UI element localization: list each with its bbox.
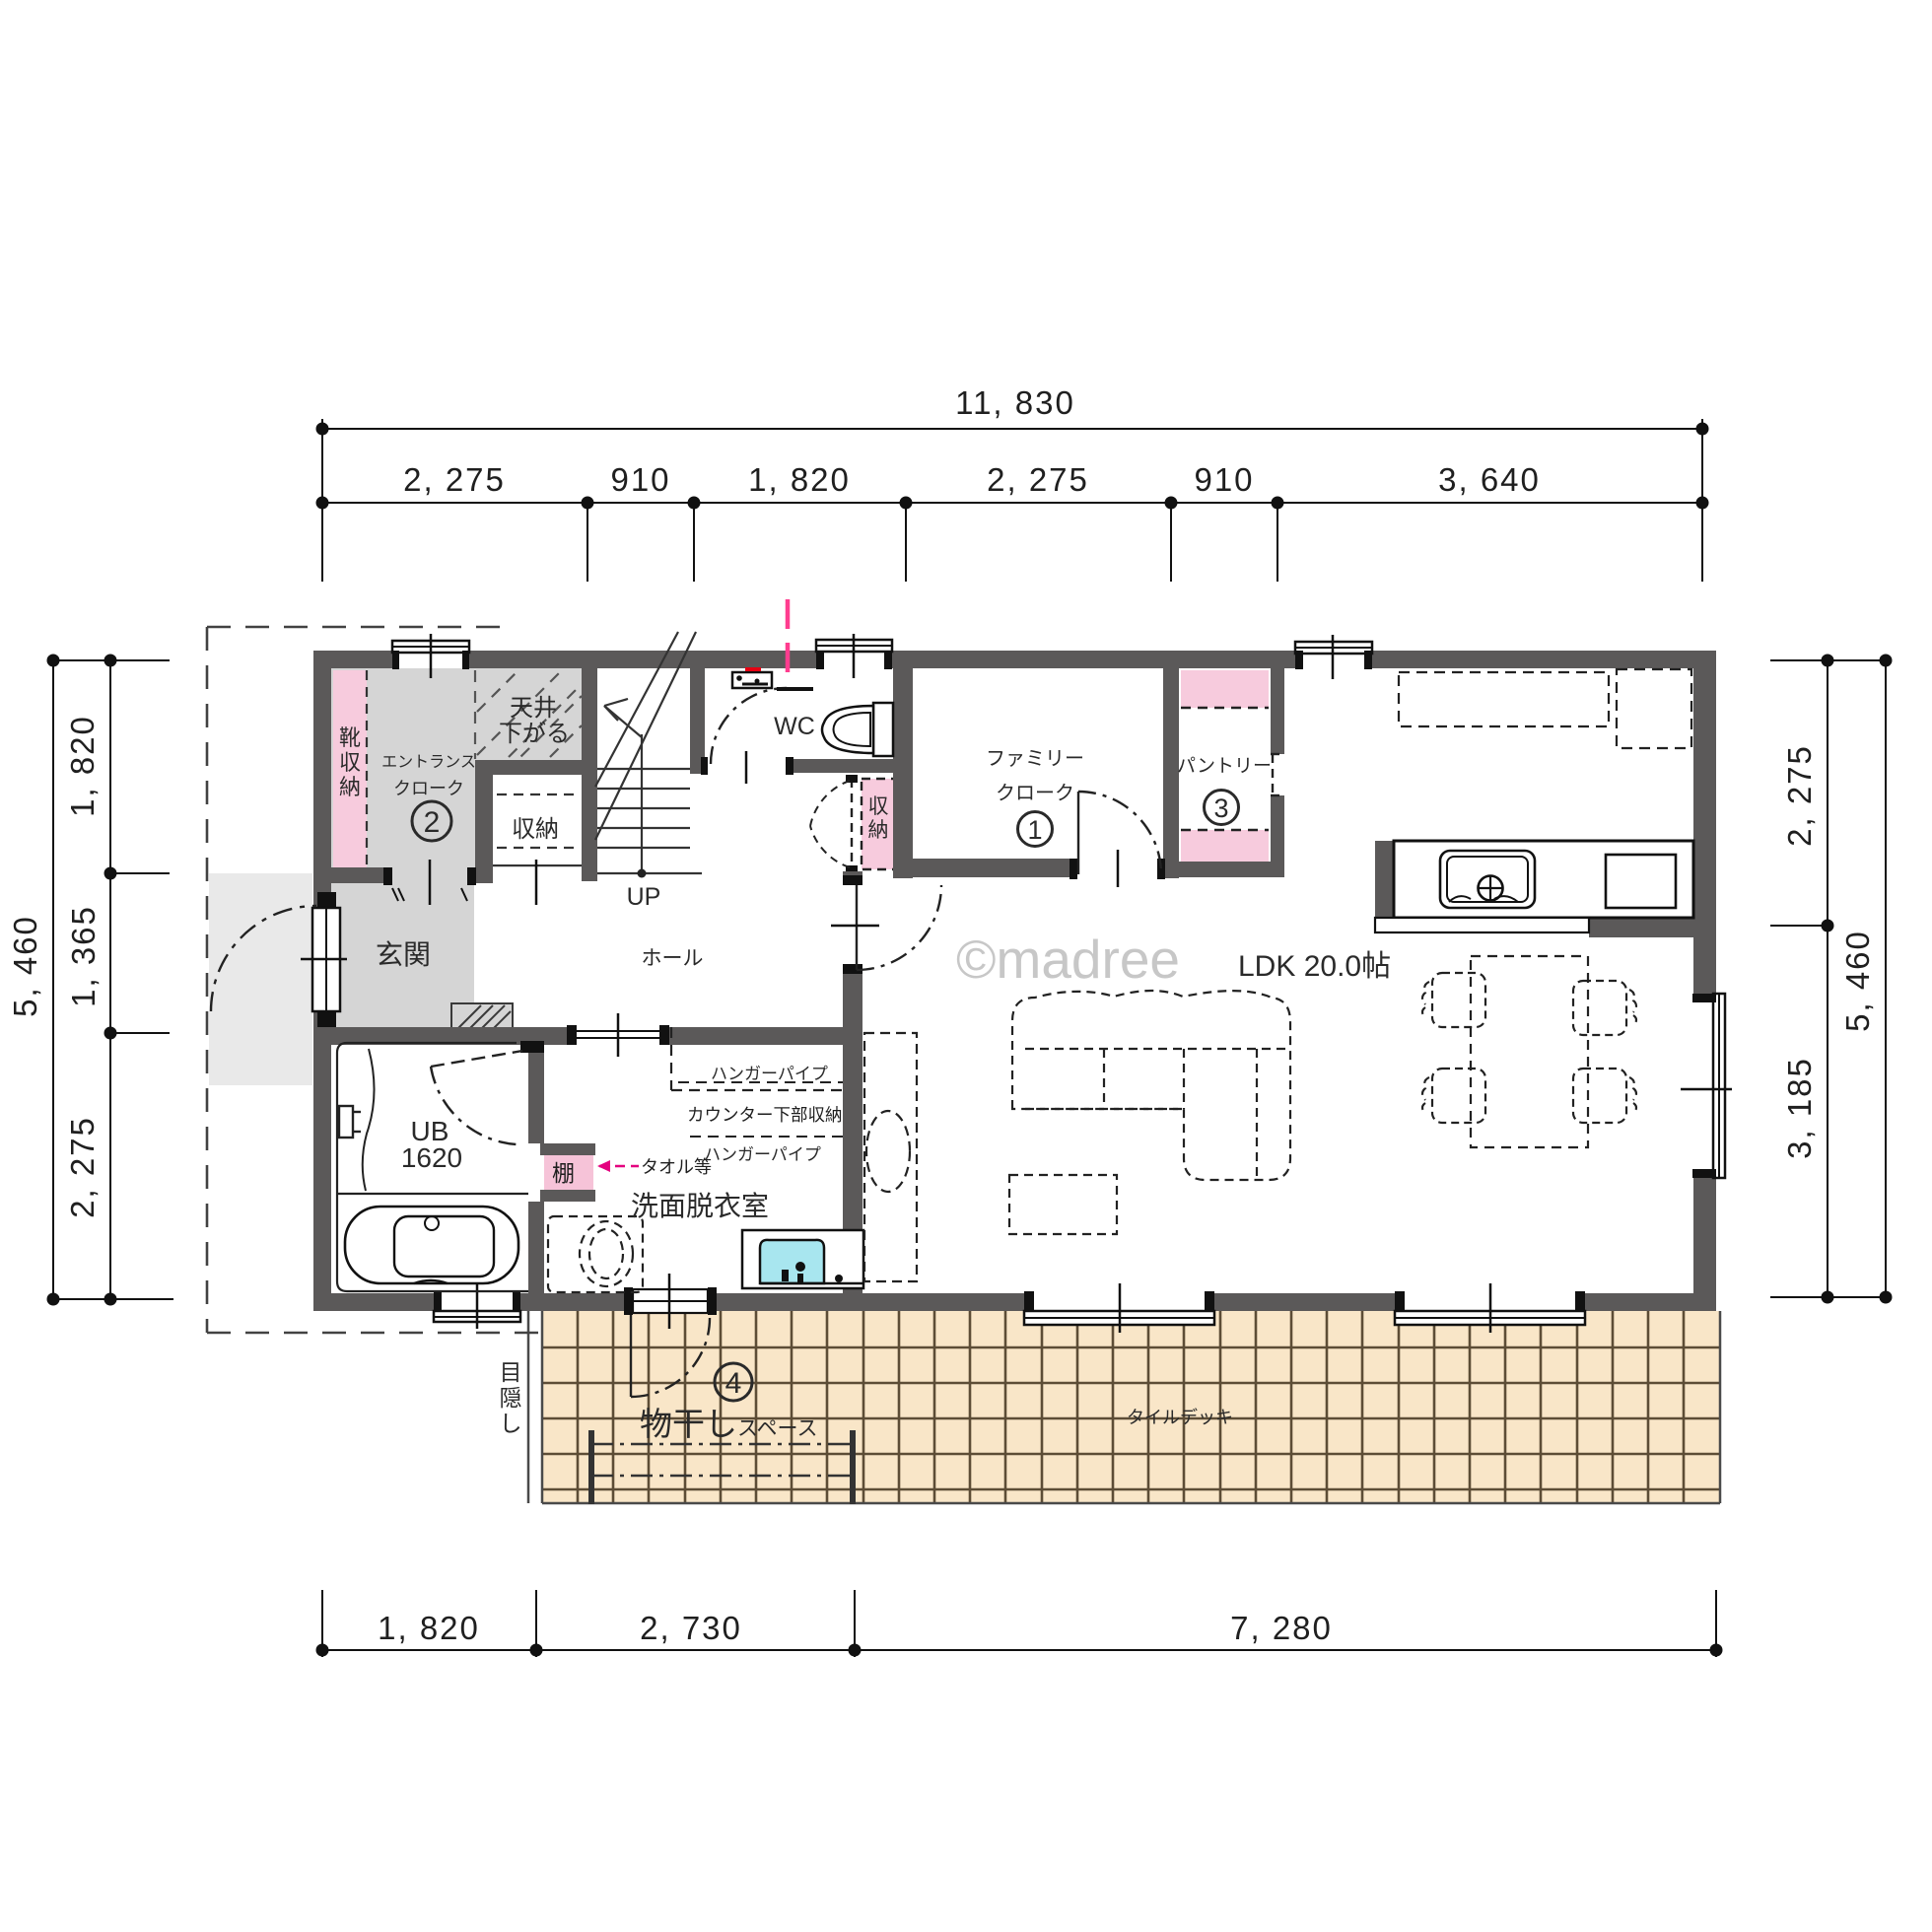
svg-text:納: 納	[339, 775, 361, 799]
svg-text:2, 275: 2, 275	[403, 461, 506, 498]
svg-text:カウンター下部収納: カウンター下部収納	[687, 1105, 843, 1125]
svg-text:2, 275: 2, 275	[1781, 744, 1818, 847]
svg-text:パントリー: パントリー	[1177, 756, 1272, 777]
svg-text:天井: 天井	[510, 695, 557, 722]
svg-text:2, 730: 2, 730	[640, 1610, 742, 1646]
svg-text:目: 目	[500, 1359, 522, 1385]
svg-text:ハンガーパイプ: ハンガーパイプ	[704, 1145, 821, 1164]
svg-text:1, 820: 1, 820	[748, 461, 851, 498]
svg-text:し: し	[500, 1411, 522, 1436]
svg-text:3, 185: 3, 185	[1781, 1057, 1818, 1159]
svg-text:クローク: クローク	[996, 782, 1074, 804]
svg-text:1, 820: 1, 820	[378, 1610, 480, 1646]
svg-text:エントランス: エントランス	[381, 754, 476, 771]
svg-text:©madree: ©madree	[956, 929, 1180, 990]
svg-text:2, 275: 2, 275	[987, 461, 1089, 498]
svg-text:納: 納	[868, 819, 889, 842]
svg-text:5, 460: 5, 460	[1839, 930, 1876, 1032]
svg-text:11, 830: 11, 830	[955, 384, 1075, 421]
svg-text:3, 640: 3, 640	[1438, 461, 1541, 498]
svg-text:5, 460: 5, 460	[7, 915, 43, 1017]
svg-text:3: 3	[1213, 793, 1228, 823]
svg-text:2, 275: 2, 275	[64, 1116, 101, 1218]
svg-text:910: 910	[1194, 461, 1254, 498]
svg-text:タイルデッキ: タイルデッキ	[1127, 1408, 1233, 1427]
svg-text:収: 収	[339, 750, 361, 775]
svg-text:ファミリー: ファミリー	[986, 748, 1084, 770]
svg-text:洗面脱衣室: 洗面脱衣室	[631, 1191, 769, 1221]
svg-text:1, 365: 1, 365	[65, 905, 102, 1007]
svg-text:タオル等: タオル等	[641, 1157, 712, 1177]
svg-text:910: 910	[610, 461, 670, 498]
svg-text:1620: 1620	[401, 1142, 462, 1173]
svg-text:ホール: ホール	[642, 947, 704, 970]
svg-text:ハンガーパイプ: ハンガーパイプ	[711, 1065, 828, 1083]
svg-text:1: 1	[1027, 815, 1042, 845]
svg-text:玄関: 玄関	[376, 939, 431, 970]
svg-text:LDK 20.0帖: LDK 20.0帖	[1238, 950, 1391, 983]
svg-text:WC: WC	[774, 713, 815, 740]
svg-text:1, 820: 1, 820	[64, 715, 101, 817]
svg-text:靴: 靴	[339, 725, 361, 750]
svg-text:4: 4	[725, 1367, 742, 1400]
svg-text:収: 収	[868, 795, 889, 818]
svg-text:UP: UP	[627, 883, 661, 911]
svg-text:収納: 収納	[512, 816, 559, 843]
svg-text:棚: 棚	[552, 1160, 575, 1186]
svg-text:隠: 隠	[500, 1385, 522, 1411]
svg-text:2: 2	[424, 806, 441, 839]
svg-text:7, 280: 7, 280	[1230, 1610, 1333, 1646]
svg-text:クローク: クローク	[393, 779, 464, 798]
svg-text:下がる: 下がる	[499, 721, 570, 747]
